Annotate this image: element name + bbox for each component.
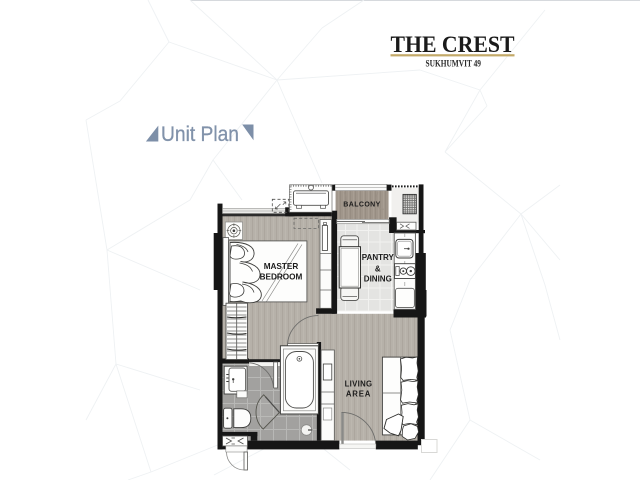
svg-text:PANTRY: PANTRY <box>362 253 395 262</box>
svg-text:BEDROOM: BEDROOM <box>260 273 303 282</box>
svg-text:THE CREST: THE CREST <box>391 32 515 57</box>
svg-text:&: & <box>375 265 381 274</box>
svg-text:LIVING: LIVING <box>345 379 373 388</box>
svg-text:SUKHUMVIT 49: SUKHUMVIT 49 <box>426 59 482 69</box>
svg-text:Unit Plan: Unit Plan <box>161 122 239 146</box>
svg-text:MASTER: MASTER <box>264 262 299 271</box>
svg-text:AREA: AREA <box>346 390 371 399</box>
svg-text:BALCONY: BALCONY <box>343 202 380 209</box>
svg-text:DINING: DINING <box>364 274 392 283</box>
